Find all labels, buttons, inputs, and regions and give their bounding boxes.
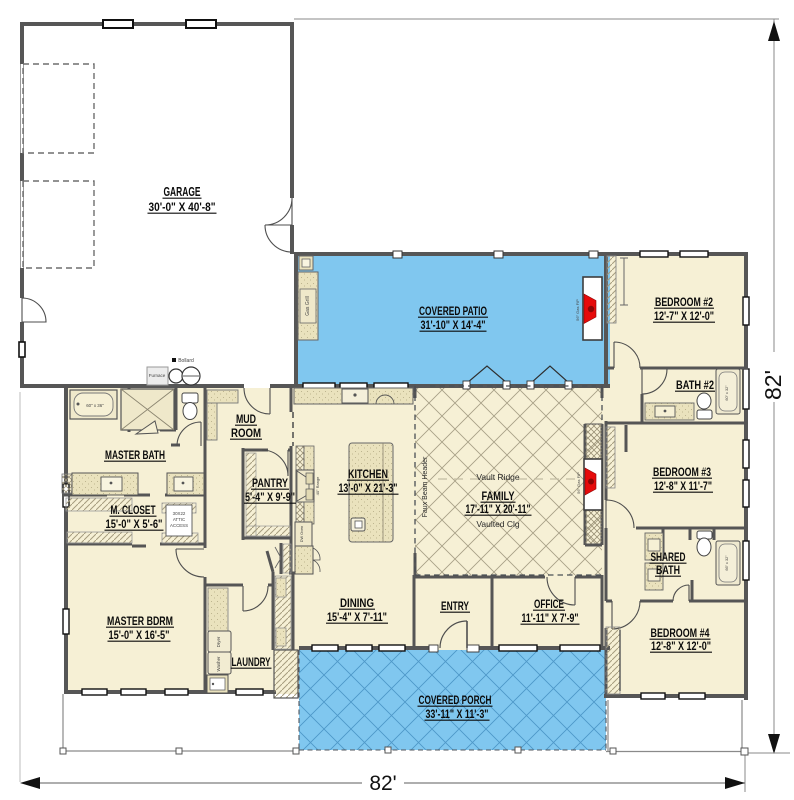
svg-text:31'-10" X 14'-4": 31'-10" X 14'-4" xyxy=(421,320,486,332)
svg-text:SHARED: SHARED xyxy=(651,552,686,564)
svg-text:Faux Beam Header: Faux Beam Header xyxy=(422,456,429,517)
svg-text:ACCESS: ACCESS xyxy=(170,523,188,528)
svg-text:ATTIC: ATTIC xyxy=(173,517,185,522)
svg-text:13'-0" X 21'-3": 13'-0" X 21'-3" xyxy=(339,483,398,495)
svg-text:66" x 32": 66" x 32" xyxy=(725,555,729,571)
svg-text:30X22: 30X22 xyxy=(173,511,186,516)
svg-text:MUD: MUD xyxy=(236,414,256,426)
svg-text:COVERED PATIO: COVERED PATIO xyxy=(419,306,487,318)
svg-text:Furnace: Furnace xyxy=(149,373,166,378)
svg-text:15'-0" X 16'-5": 15'-0" X 16'-5" xyxy=(109,630,170,642)
svg-text:BATH: BATH xyxy=(656,565,680,577)
svg-text:17'-11" X 20'-11": 17'-11" X 20'-11" xyxy=(466,504,531,516)
svg-text:BEDROOM #3: BEDROOM #3 xyxy=(653,467,711,479)
svg-text:DINING: DINING xyxy=(340,598,374,610)
svg-text:LAUNDRY: LAUNDRY xyxy=(232,657,271,669)
svg-text:5'-4" X 9'-9": 5'-4" X 9'-9" xyxy=(245,492,295,504)
svg-text:82': 82' xyxy=(369,772,396,795)
svg-text:Bollard: Bollard xyxy=(178,358,194,364)
svg-text:60" x 32": 60" x 32" xyxy=(725,385,729,401)
svg-text:12'-8" X 11'-7": 12'-8" X 11'-7" xyxy=(654,481,712,493)
svg-text:40" Range: 40" Range xyxy=(315,476,320,496)
svg-text:Dryer: Dryer xyxy=(216,636,221,647)
svg-text:12'-8" X 12'-0": 12'-8" X 12'-0" xyxy=(651,641,711,653)
svg-text:MASTER BDRM: MASTER BDRM xyxy=(107,616,173,628)
svg-text:DW Oven: DW Oven xyxy=(300,526,304,542)
svg-text:BEDROOM #2: BEDROOM #2 xyxy=(655,297,713,309)
svg-text:Vault Ridge: Vault Ridge xyxy=(476,472,520,482)
svg-text:MASTER BATH: MASTER BATH xyxy=(105,450,165,462)
svg-text:15'-0" X 5'-6": 15'-0" X 5'-6" xyxy=(106,519,163,531)
svg-text:ENTRY: ENTRY xyxy=(441,601,469,613)
svg-text:M. CLOSET: M. CLOSET xyxy=(111,505,156,517)
svg-text:COVERED PORCH: COVERED PORCH xyxy=(419,695,492,707)
svg-text:56" Gas F/P: 56" Gas F/P xyxy=(576,472,581,494)
svg-text:Vaulted Clg: Vaulted Clg xyxy=(476,519,520,529)
svg-text:PANTRY: PANTRY xyxy=(252,478,288,490)
svg-text:12'-7" X 12'-0": 12'-7" X 12'-0" xyxy=(654,311,714,323)
svg-text:OFFICE: OFFICE xyxy=(534,599,564,611)
svg-text:KITCHEN: KITCHEN xyxy=(348,469,388,481)
svg-text:ROOM: ROOM xyxy=(231,428,261,440)
svg-text:BEDROOM #4: BEDROOM #4 xyxy=(651,628,710,640)
svg-text:30'-0" X 40'-8": 30'-0" X 40'-8" xyxy=(149,200,216,214)
svg-text:82': 82' xyxy=(760,370,786,400)
svg-text:60" x 36": 60" x 36" xyxy=(86,403,104,408)
svg-text:Gas Grill: Gas Grill xyxy=(305,296,311,315)
svg-text:11'-11" X 7'-9": 11'-11" X 7'-9" xyxy=(522,613,579,625)
svg-text:GARAGE: GARAGE xyxy=(164,184,201,199)
svg-text:BATH #2: BATH #2 xyxy=(676,380,714,392)
svg-text:Washer: Washer xyxy=(216,656,221,672)
svg-text:15'-4" X 7'-11": 15'-4" X 7'-11" xyxy=(327,612,387,624)
svg-text:56" Gas F/P: 56" Gas F/P xyxy=(575,299,580,321)
svg-text:FAMILY: FAMILY xyxy=(482,489,515,503)
svg-text:33'-11" X 11'-3": 33'-11" X 11'-3" xyxy=(426,709,489,721)
